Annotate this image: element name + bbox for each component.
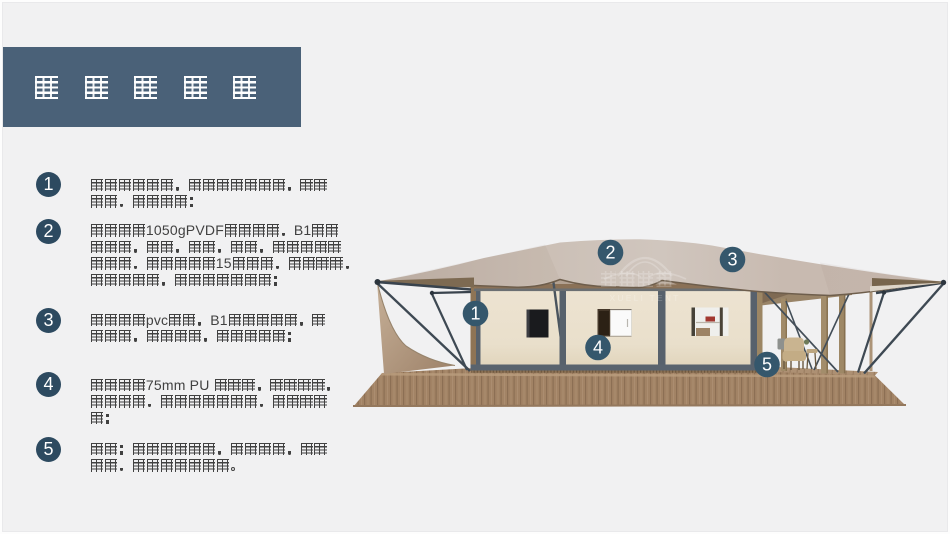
svg-text:4: 4	[593, 338, 603, 358]
svg-text:2: 2	[605, 243, 615, 263]
svg-text:XUELI TENT: XUELI TENT	[610, 293, 681, 303]
svg-text:3: 3	[727, 250, 737, 270]
svg-text:5: 5	[762, 355, 772, 375]
svg-text:1: 1	[470, 304, 480, 324]
